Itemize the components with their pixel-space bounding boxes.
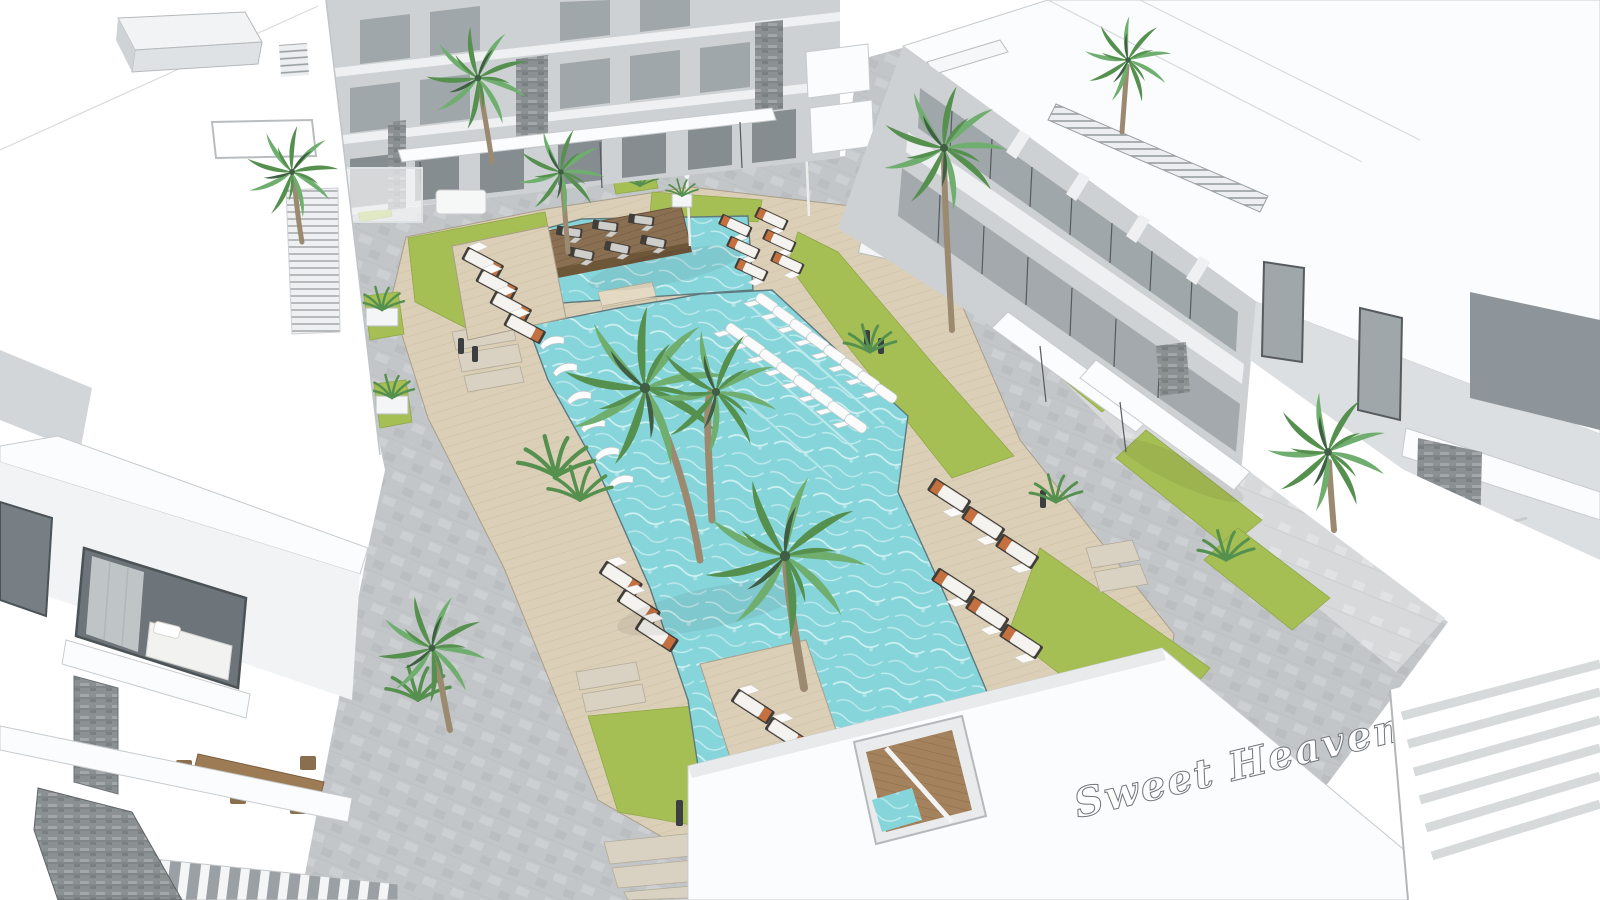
outdoor-sofa [436,190,486,214]
resort-courtyard-rendering: Sweet Heaven [0,0,1600,900]
